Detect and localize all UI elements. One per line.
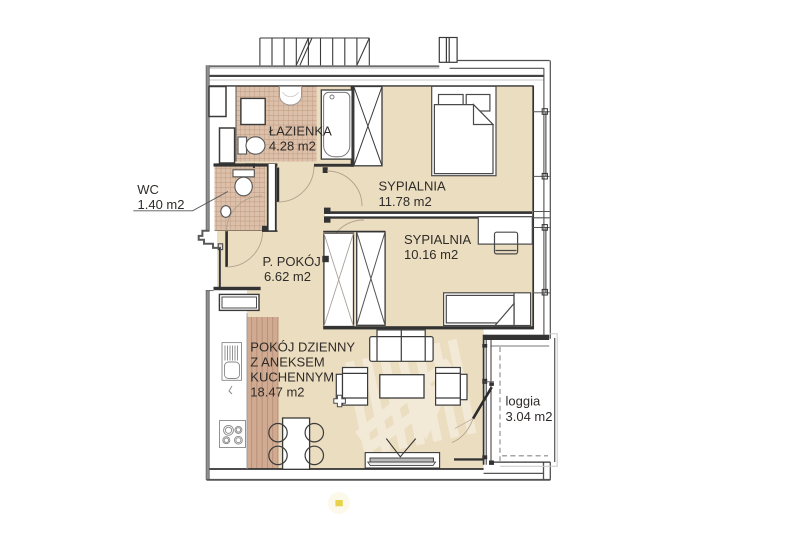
svg-text:KUCHENNYM: KUCHENNYM [250, 370, 334, 385]
svg-text:3.04 m2: 3.04 m2 [506, 409, 553, 424]
svg-text:POKÓJ DZIENNY: POKÓJ DZIENNY [250, 340, 355, 355]
svg-text:loggia: loggia [506, 394, 541, 409]
svg-text:11.78 m2: 11.78 m2 [379, 194, 432, 209]
svg-text:Z ANEKSEM: Z ANEKSEM [250, 355, 324, 370]
svg-text:ŁAZIENKA: ŁAZIENKA [269, 124, 332, 139]
svg-text:SYPIALNIA: SYPIALNIA [379, 179, 447, 194]
svg-text:4.28 m2: 4.28 m2 [269, 139, 316, 154]
svg-text:10.16 m2: 10.16 m2 [404, 247, 458, 262]
svg-text:1.40 m2: 1.40 m2 [138, 197, 185, 212]
svg-text:WC: WC [137, 182, 159, 197]
svg-text:P. POKÓJ: P. POKÓJ [263, 254, 321, 269]
svg-text:6.62 m2: 6.62 m2 [264, 269, 311, 284]
svg-text:18.47 m2: 18.47 m2 [250, 385, 304, 400]
svg-text:SYPIALNIA: SYPIALNIA [404, 232, 472, 247]
